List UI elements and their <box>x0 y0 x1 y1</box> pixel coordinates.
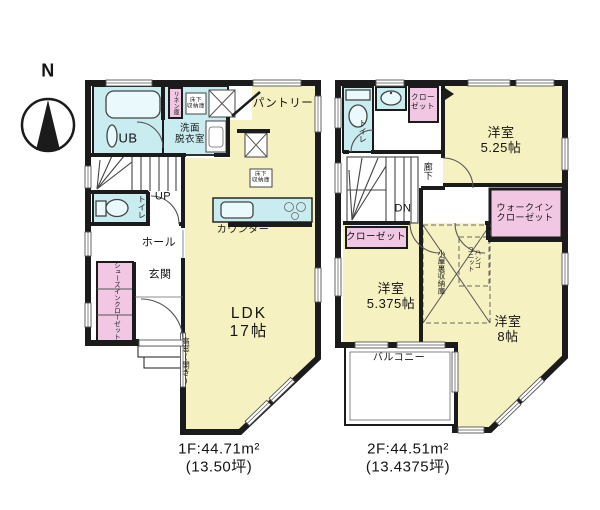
label-underfloor-storage-ldk: 床下 収納庫 <box>252 172 270 185</box>
label-balcony: バルコニー <box>373 352 425 364</box>
label-hall: ホール <box>142 237 177 250</box>
floor2-plan <box>335 80 568 433</box>
label-washroom: 洗面 脱衣室 <box>175 124 205 146</box>
label-shoes-in-closet: シューズインクローゼット <box>112 262 119 340</box>
label-toilet-2f: トイレ <box>358 119 366 143</box>
toilet1-tank <box>96 201 106 216</box>
floor1-tsubo-text: (13.50坪) <box>186 458 253 475</box>
toilet2-tank <box>346 90 370 100</box>
porch-step-2 <box>144 357 184 368</box>
label-western-room-8: 洋室 8帖 <box>494 315 521 345</box>
compass-north-label: N <box>41 61 55 82</box>
label-pantry: パントリー <box>253 97 314 110</box>
label-closet-west: クローゼット <box>346 233 406 244</box>
floorplan-drawing <box>0 0 600 510</box>
floorplan-canvas: N UB 洗面 脱衣室 リネン庫 床下 収納庫 パントリー 床下 収納庫 カウン… <box>0 0 600 510</box>
label-attic-storage: 小屋裏収納庫 <box>437 250 445 295</box>
floor1-area-text: 1F:44.71m² <box>178 440 260 457</box>
bathtub <box>106 91 160 118</box>
label-entrance: 玄関 <box>149 269 172 282</box>
label-high-window: 高窓(開き) <box>182 337 190 385</box>
label-kitchen-counter: カウンター <box>217 224 270 236</box>
compass <box>22 99 74 151</box>
label-toilet-1f: トイレ <box>137 195 145 219</box>
porch-step-1 <box>138 346 184 357</box>
label-western-room-525: 洋室 5.25帖 <box>481 126 522 156</box>
label-linen-closet: リネン庫 <box>172 91 178 115</box>
entrance-door-opening <box>139 340 183 346</box>
label-western-room-5375: 洋室 5.375帖 <box>367 282 416 312</box>
toilet1-bowl <box>106 200 128 217</box>
label-stairs-up: UP <box>155 191 171 204</box>
kitchen-sink <box>221 202 253 218</box>
label-stairs-down: DN <box>395 203 412 216</box>
label-underfloor-storage-top: 床下 収納庫 <box>187 98 205 111</box>
label-ladder-unit: ハシゴ ユニット <box>465 246 479 272</box>
label-unit-bath: UB <box>118 132 137 147</box>
label-walk-in-closet: ウォークイン クローゼット <box>496 203 553 224</box>
floor2-area-text: 2F:44.51m² <box>367 440 449 457</box>
label-ldk: LDK 17帖 <box>230 305 269 341</box>
label-corridor: 廊下 <box>422 162 431 180</box>
bath-stool <box>107 125 117 147</box>
floor2-tsubo-text: (13.4375坪) <box>366 458 450 475</box>
label-closet-north: クロー ゼット <box>411 93 435 110</box>
